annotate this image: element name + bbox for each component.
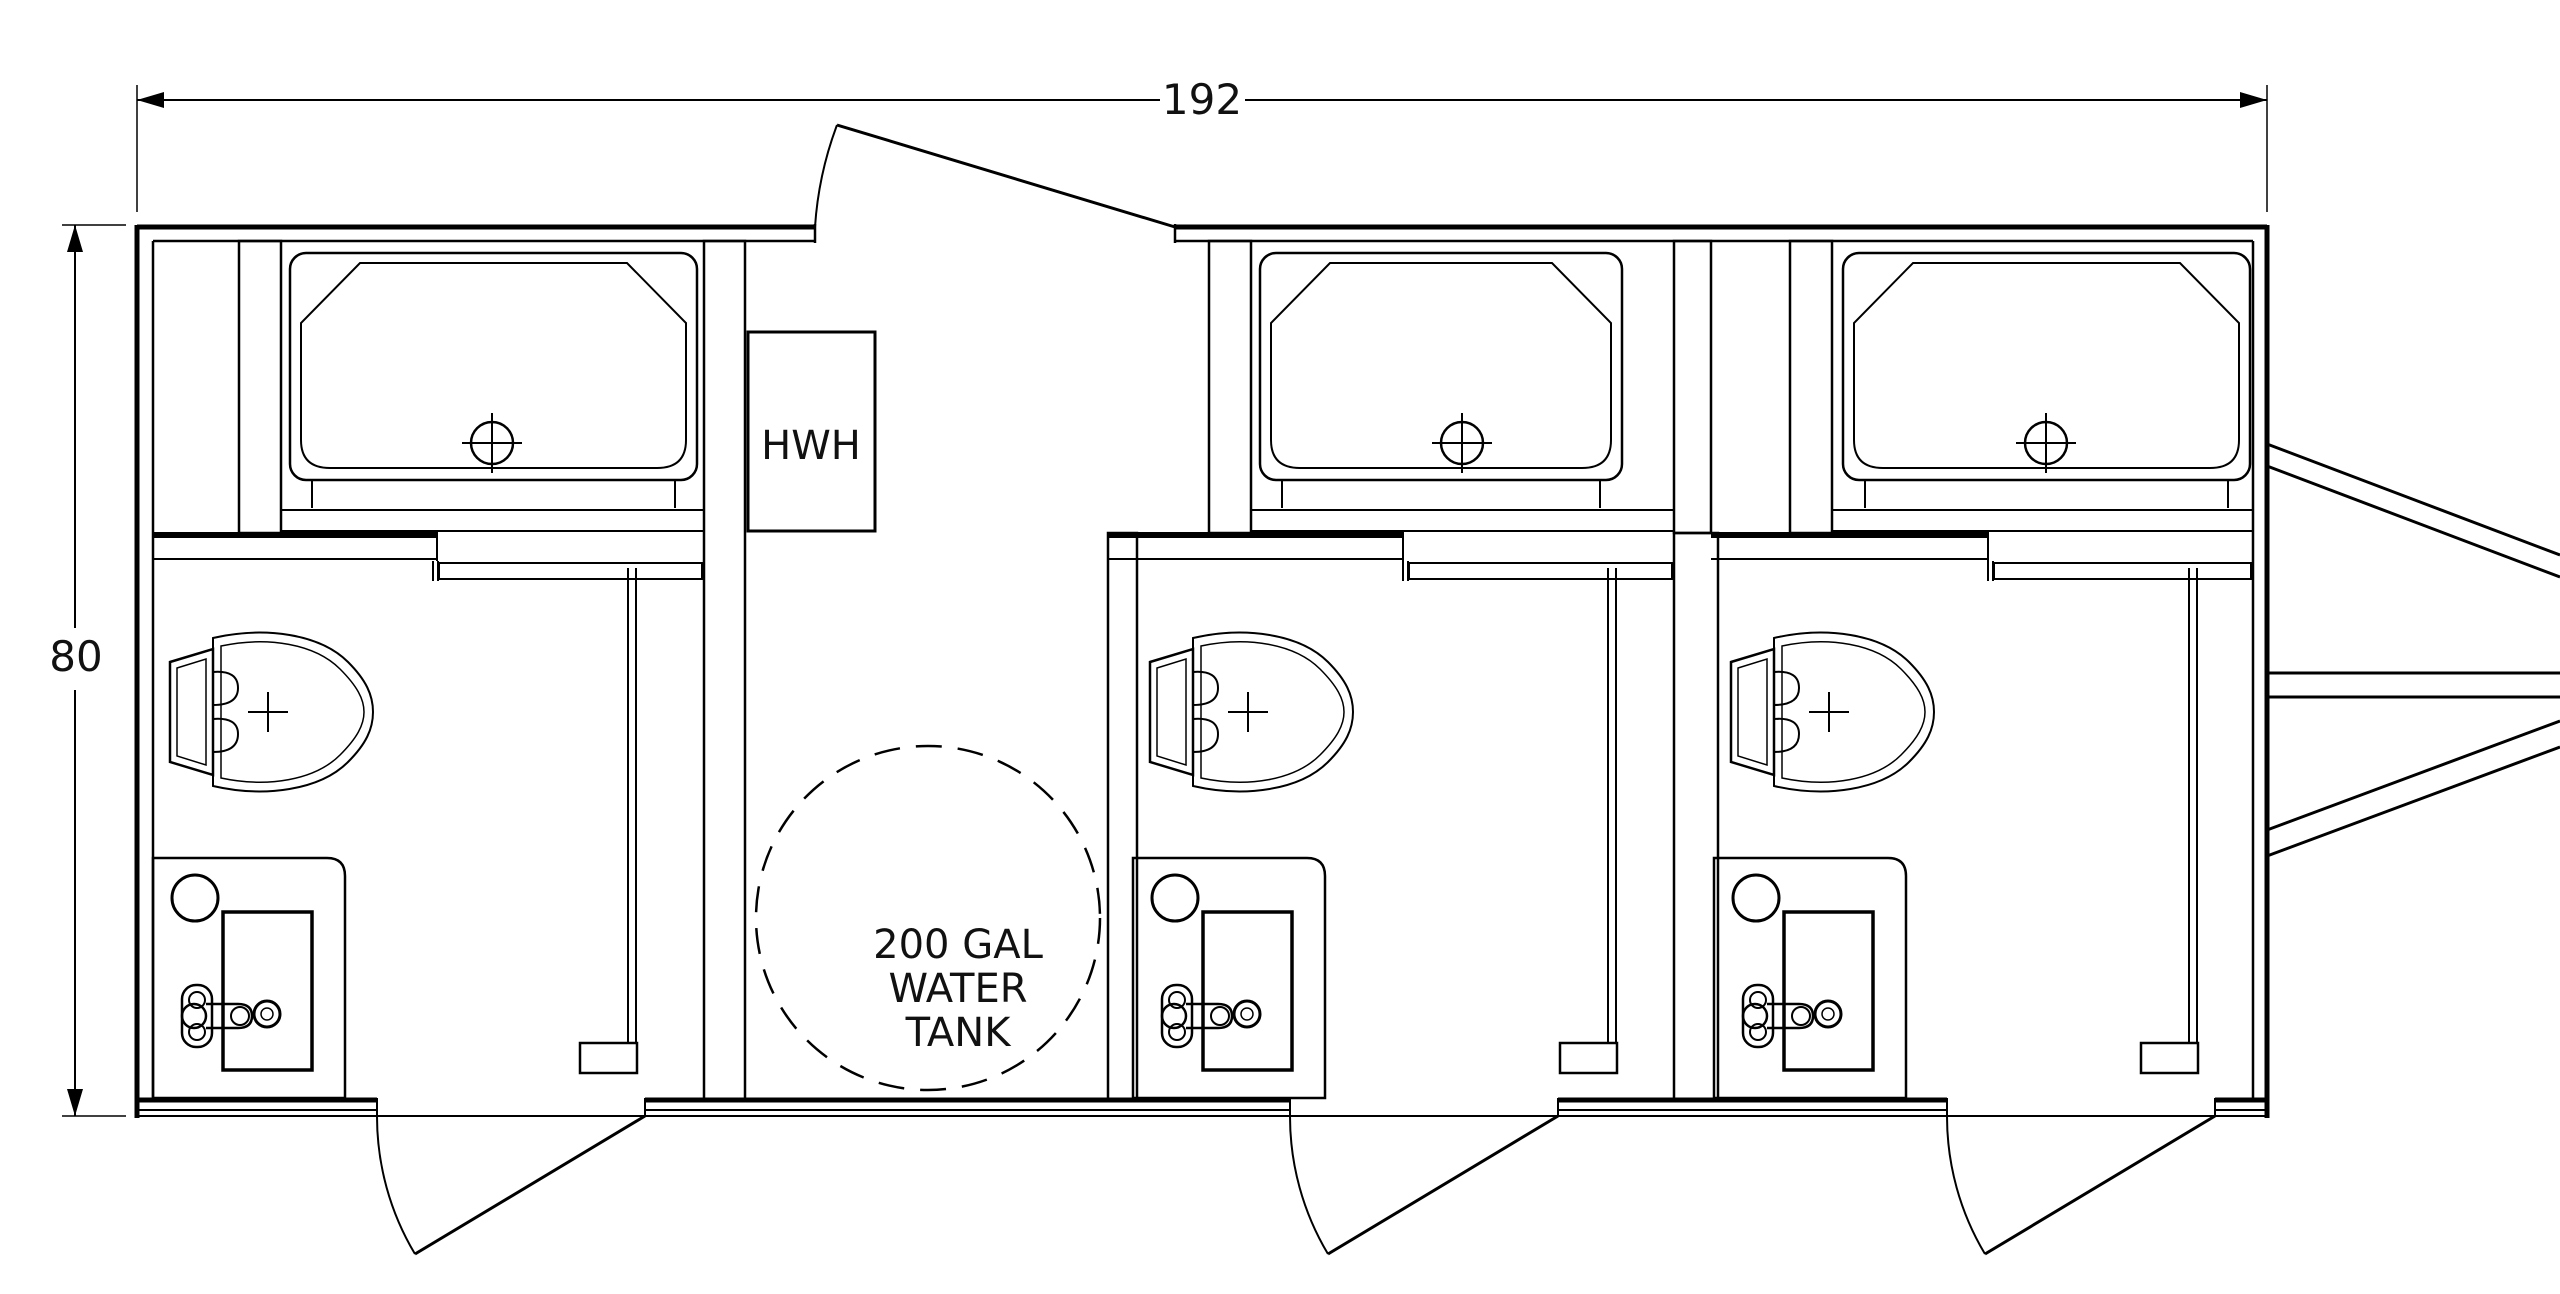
water-tank-label-line3: TANK	[905, 1010, 1013, 1056]
water-tank-label-line2: WATER	[888, 966, 1027, 1012]
floor-plan-canvas: 192 80 HWH 200 GAL WATER TANK	[0, 0, 2560, 1294]
floor-plan-page: 192 80 HWH 200 GAL WATER TANK	[0, 0, 2560, 1294]
height-dimension-label: 80	[49, 632, 102, 681]
width-dimension-label: 192	[1162, 75, 1242, 124]
water-tank-label-line1: 200 GAL	[873, 922, 1043, 968]
water-heater-label: HWH	[761, 423, 861, 469]
